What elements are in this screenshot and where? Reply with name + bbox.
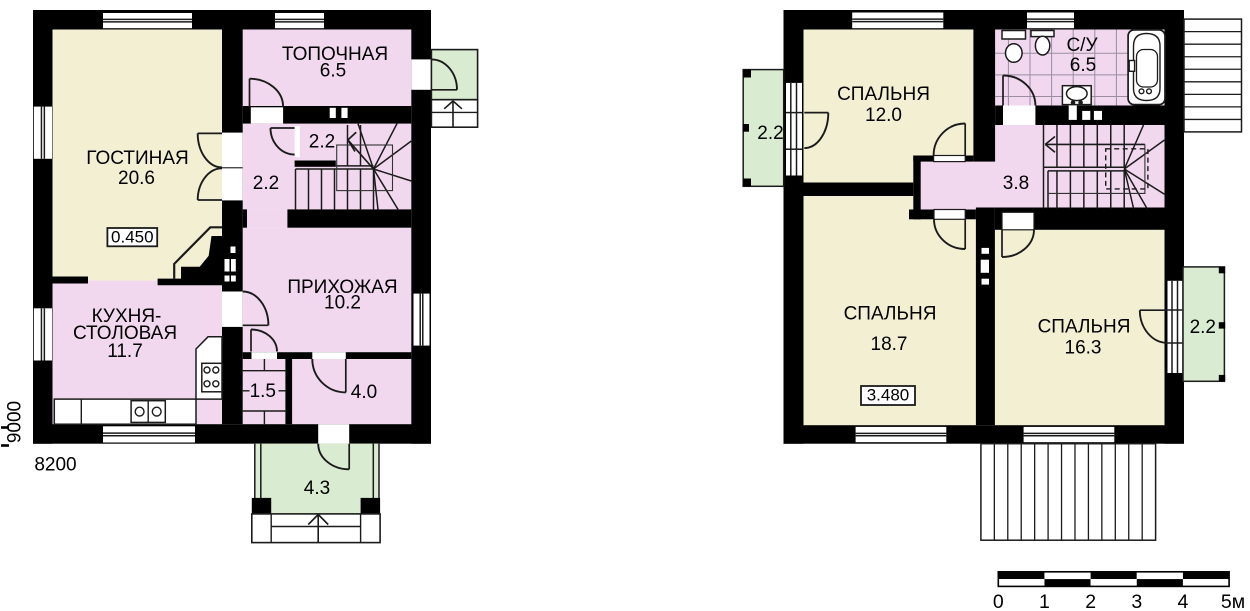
svg-text:3: 3 xyxy=(1131,591,1142,611)
svg-text:2.2: 2.2 xyxy=(309,132,335,153)
svg-text:12.0: 12.0 xyxy=(865,105,902,126)
svg-text:18.7: 18.7 xyxy=(871,334,908,355)
svg-text:2: 2 xyxy=(1085,591,1096,611)
svg-text:2.2: 2.2 xyxy=(1190,317,1216,338)
svg-text:11.7: 11.7 xyxy=(107,341,143,362)
svg-text:20.6: 20.6 xyxy=(118,168,155,189)
svg-text:3.8: 3.8 xyxy=(1003,173,1029,194)
svg-text:СПАЛЬНЯ: СПАЛЬНЯ xyxy=(844,304,937,325)
svg-text:10.2: 10.2 xyxy=(324,293,361,314)
svg-text:9000: 9000 xyxy=(5,401,26,443)
svg-text:СПАЛЬНЯ: СПАЛЬНЯ xyxy=(1038,317,1131,338)
svg-text:0.450: 0.450 xyxy=(111,227,154,246)
svg-text:2.2: 2.2 xyxy=(757,123,783,144)
svg-text:8200: 8200 xyxy=(34,455,76,476)
svg-text:4: 4 xyxy=(1178,591,1189,611)
svg-text:ГОСТИНАЯ: ГОСТИНАЯ xyxy=(86,148,188,169)
svg-text:6.5: 6.5 xyxy=(1070,55,1096,76)
svg-text:0: 0 xyxy=(993,591,1004,611)
svg-text:СПАЛЬНЯ: СПАЛЬНЯ xyxy=(837,84,930,105)
svg-text:5м: 5м xyxy=(1221,591,1245,611)
svg-text:С/У: С/У xyxy=(1066,35,1098,56)
svg-text:4.0: 4.0 xyxy=(351,382,377,403)
svg-text:4.3: 4.3 xyxy=(304,478,330,499)
svg-text:2.2: 2.2 xyxy=(253,173,279,194)
svg-text:1.5: 1.5 xyxy=(250,381,276,402)
svg-text:6.5: 6.5 xyxy=(320,61,346,82)
svg-text:3.480: 3.480 xyxy=(867,386,910,405)
svg-text:16.3: 16.3 xyxy=(1065,338,1102,359)
svg-text:1: 1 xyxy=(1039,591,1050,611)
